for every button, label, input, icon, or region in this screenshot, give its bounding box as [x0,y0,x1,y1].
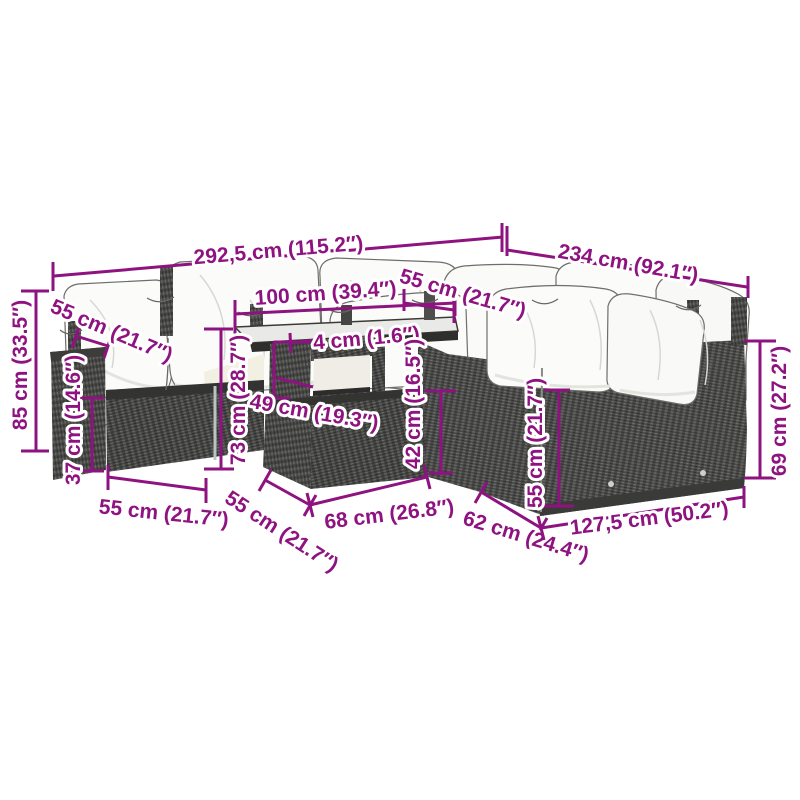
svg-text:55 cm (21.7″): 55 cm (21.7″) [524,378,547,508]
svg-text:73 cm (28.7″): 73 cm (28.7″) [227,335,250,465]
svg-text:85 cm (33.5″): 85 cm (33.5″) [9,300,32,430]
svg-text:69 cm (27.2″): 69 cm (27.2″) [768,346,791,476]
svg-text:37 cm (14.6″): 37 cm (14.6″) [62,355,85,485]
svg-text:42 cm (16.5″): 42 cm (16.5″) [402,339,425,469]
